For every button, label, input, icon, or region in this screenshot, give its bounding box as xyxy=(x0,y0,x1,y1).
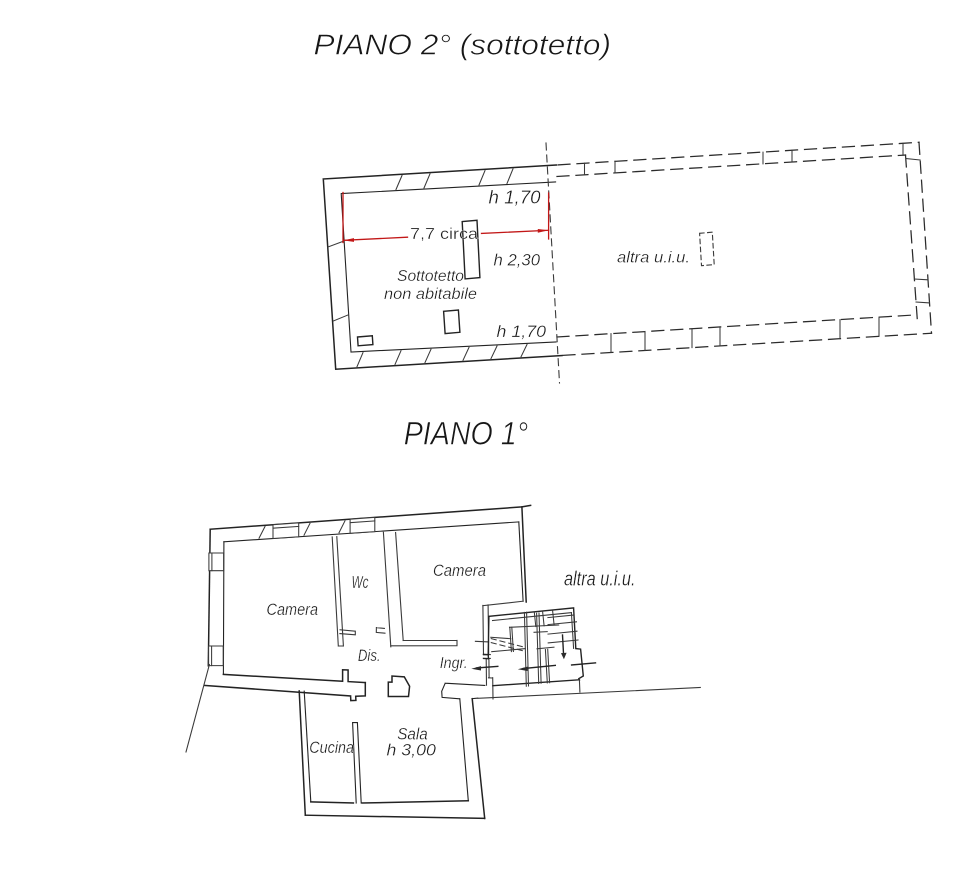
svg-text:Ingr.: Ingr. xyxy=(440,655,468,672)
svg-text:non abitabile: non abitabile xyxy=(384,286,477,303)
svg-text:Camera: Camera xyxy=(267,600,319,619)
svg-text:altra u.i.u.: altra u.i.u. xyxy=(617,250,690,267)
svg-text:Cucina: Cucina xyxy=(309,739,354,757)
svg-text:Camera: Camera xyxy=(433,561,486,580)
svg-text:Wc: Wc xyxy=(352,572,369,592)
svg-text:altra u.i.u.: altra u.i.u. xyxy=(564,568,636,591)
svg-text:PIANO 1°: PIANO 1° xyxy=(404,416,529,452)
svg-text:7,7 circa: 7,7 circa xyxy=(410,226,478,243)
svg-text:h 1,70: h 1,70 xyxy=(489,188,541,208)
svg-text:h 2,30: h 2,30 xyxy=(494,251,541,270)
svg-text:h 3,00: h 3,00 xyxy=(387,742,437,760)
svg-text:Dis.: Dis. xyxy=(358,646,381,665)
svg-text:h 1,70: h 1,70 xyxy=(497,323,547,341)
svg-text:PIANO 2° (sottotetto): PIANO 2° (sottotetto) xyxy=(314,30,612,62)
svg-text:Sottotetto: Sottotetto xyxy=(397,268,464,285)
